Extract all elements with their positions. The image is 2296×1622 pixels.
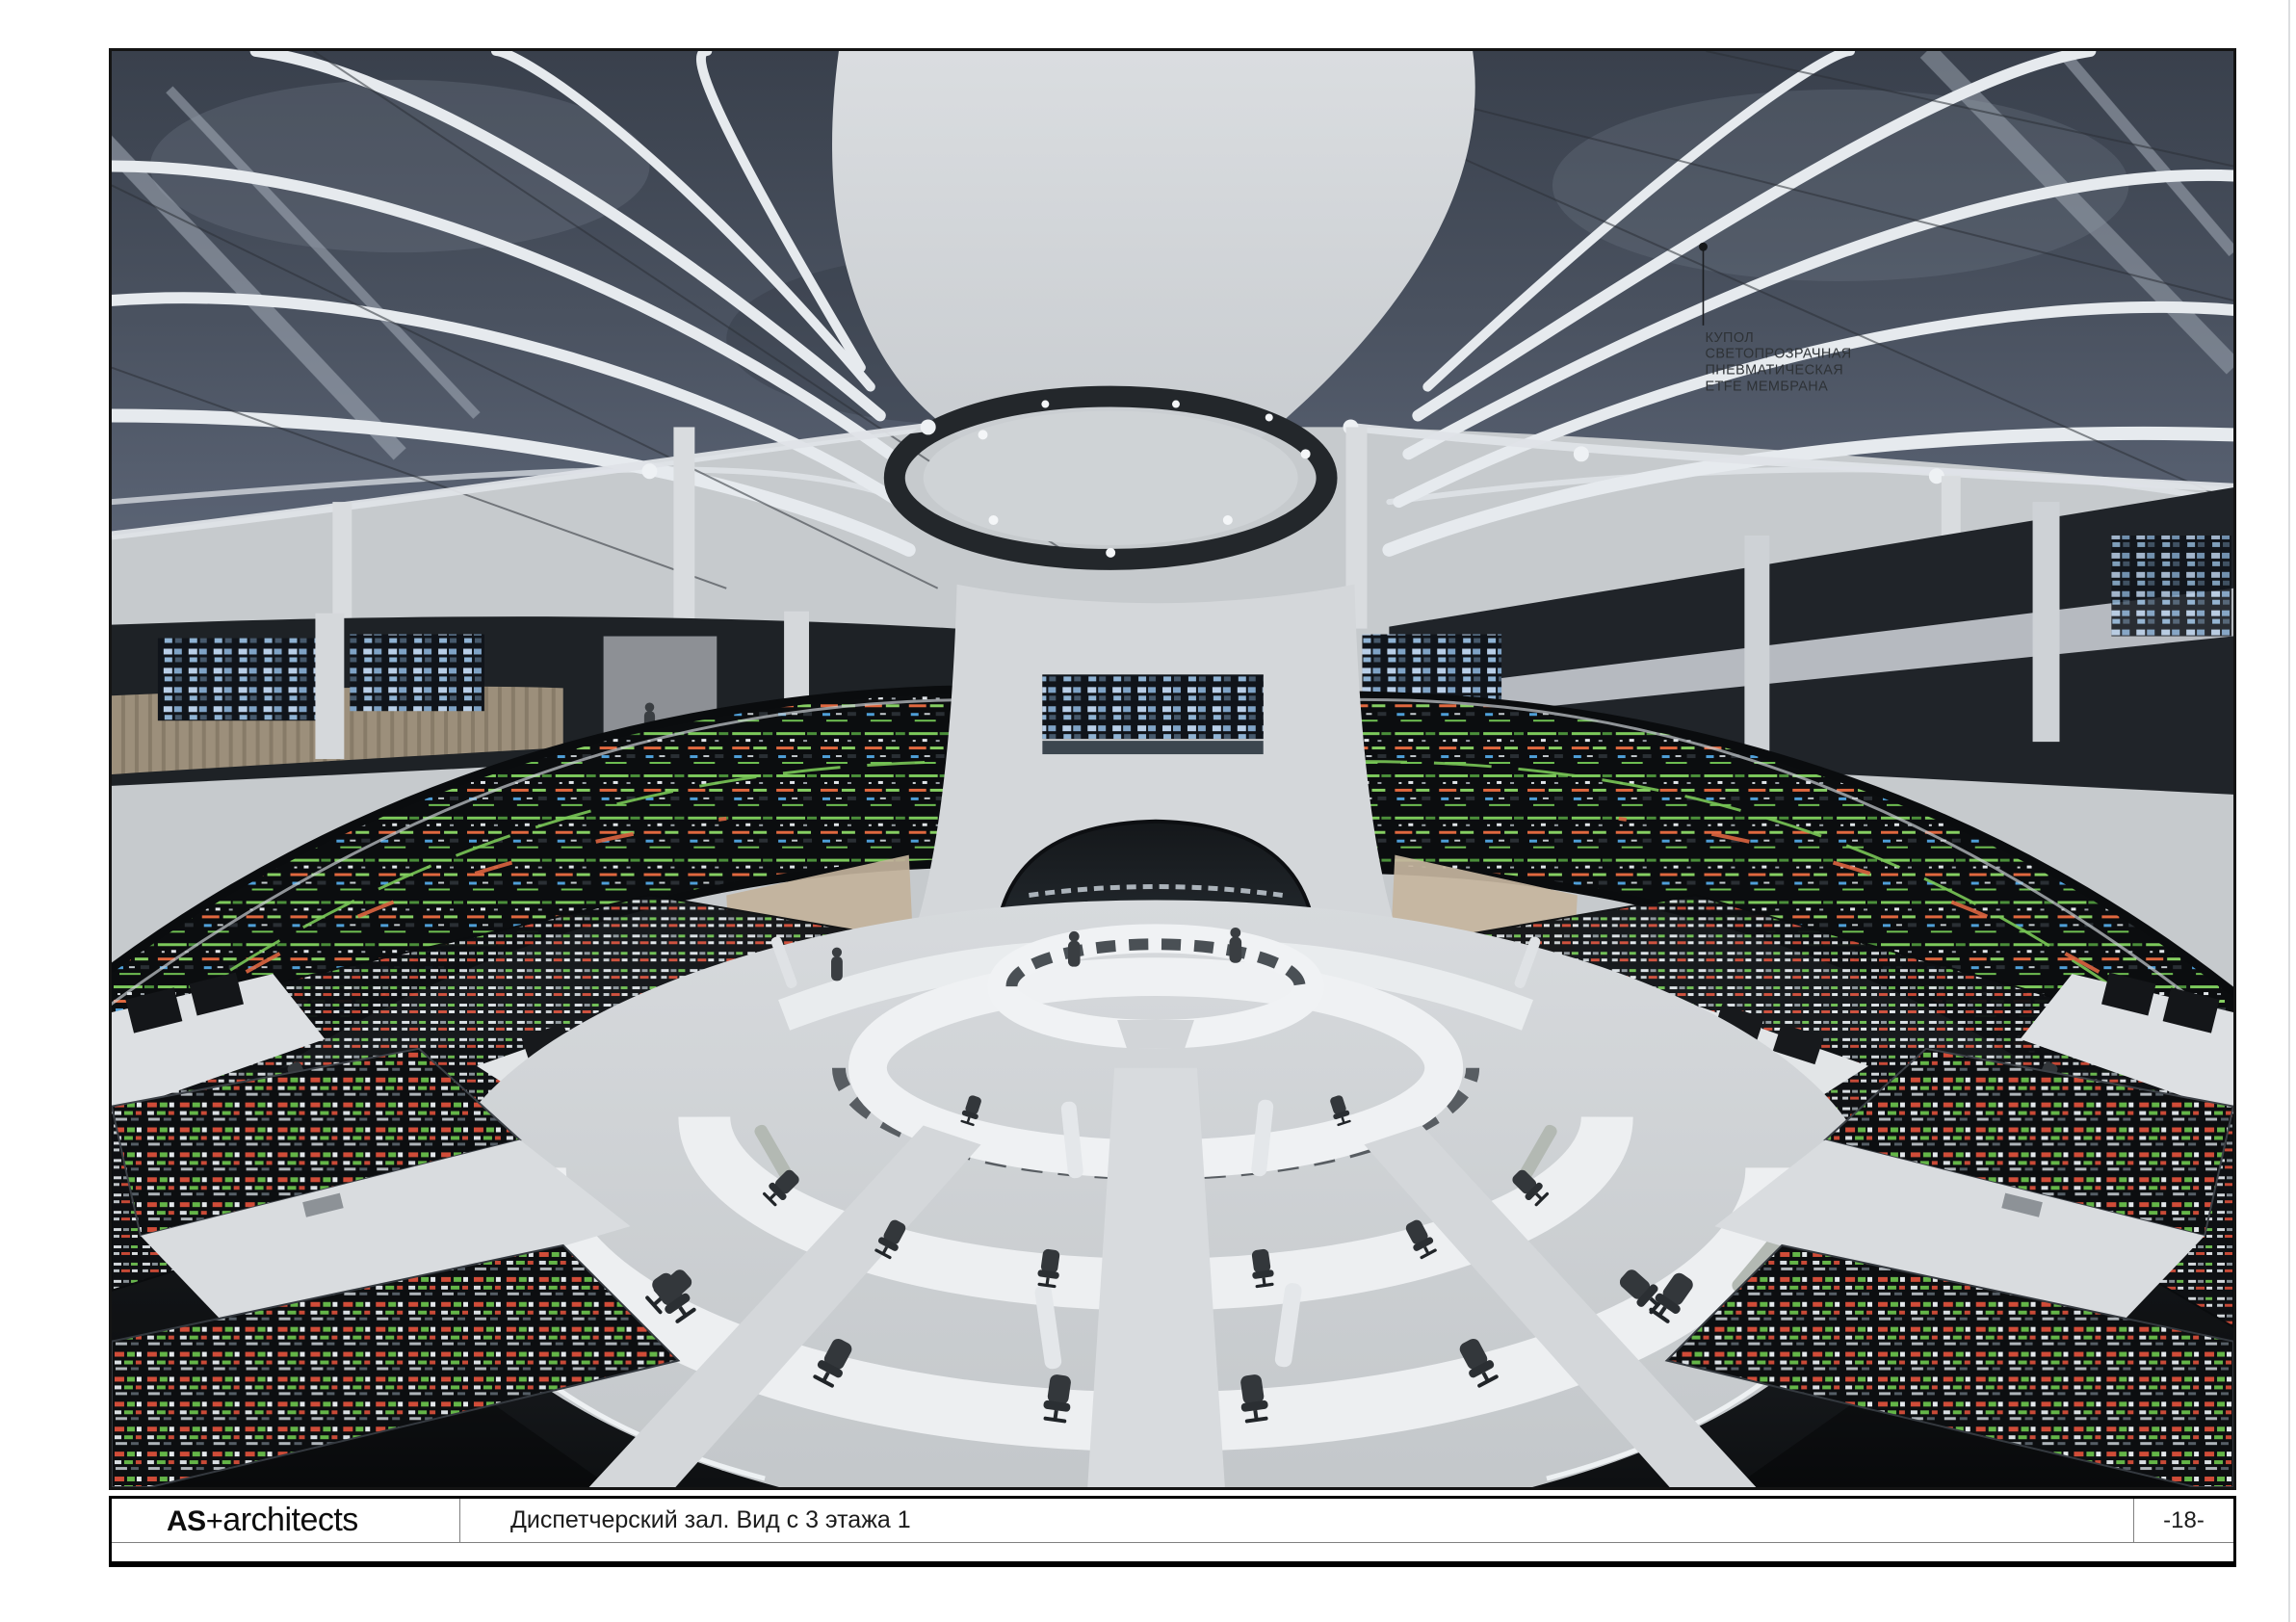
- page-number: -18-: [2163, 1507, 2205, 1534]
- callout-line-3: ПНЕВМАТИЧЕСКАЯ: [1705, 363, 1843, 379]
- title-block-empty-row: [112, 1543, 2233, 1561]
- callout-line-2: СВЕТОПРОЗРАЧНАЯ: [1705, 347, 1851, 362]
- callout-anchor-dot: [1699, 243, 1708, 251]
- logo-rest: architects: [222, 1502, 358, 1538]
- control-room-render: КУПОЛ СВЕТОПРОЗРАЧНАЯ ПНЕВМАТИЧЕСКАЯ ETF…: [112, 51, 2233, 1487]
- page-edge-shadow: [2288, 0, 2290, 1622]
- gallery-screen-wall: [158, 639, 320, 721]
- logo-cell: AS+architects: [112, 1499, 460, 1542]
- callout-line-1: КУПОЛ: [1705, 330, 1754, 346]
- page-number-cell: -18-: [2133, 1499, 2233, 1542]
- presentation-sheet: КУПОЛ СВЕТОПРОЗРАЧНАЯ ПНЕВМАТИЧЕСКАЯ ETF…: [0, 0, 2296, 1622]
- render-frame: КУПОЛ СВЕТОПРОЗРАЧНАЯ ПНЕВМАТИЧЕСКАЯ ETF…: [109, 48, 2236, 1490]
- title-block-row: AS+architects Диспетчерский зал. Вид с 3…: [112, 1499, 2233, 1543]
- logo-plus: +: [206, 1504, 223, 1537]
- title-block: AS+architects Диспетчерский зал. Вид с 3…: [109, 1496, 2236, 1567]
- caption-cell: Диспетчерский зал. Вид с 3 этажа 1: [460, 1499, 2133, 1542]
- logo-bold: AS: [167, 1505, 206, 1537]
- firm-logo: AS+architects: [167, 1502, 358, 1539]
- callout-line-4: ETFE МЕМБРАНА: [1705, 379, 1828, 395]
- sheet-caption: Диспетчерский зал. Вид с 3 этажа 1: [510, 1506, 911, 1534]
